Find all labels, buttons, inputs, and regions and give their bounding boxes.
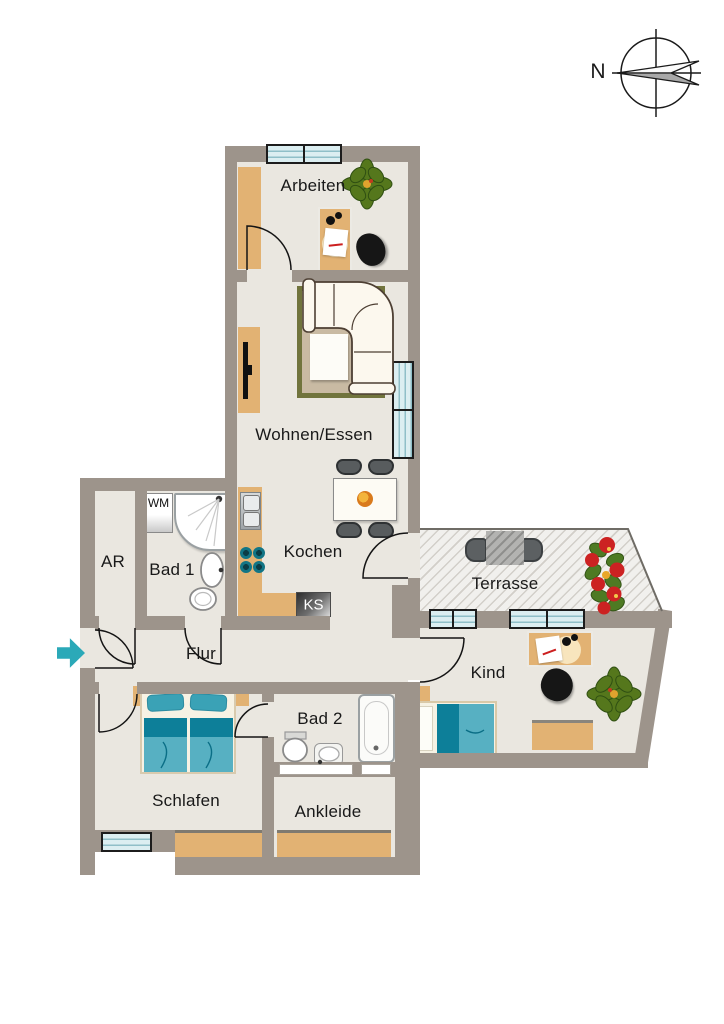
bed-blanket bbox=[190, 737, 233, 772]
wall-segment bbox=[175, 857, 420, 875]
wall-segment bbox=[221, 616, 330, 630]
compass bbox=[612, 29, 701, 117]
terrace-chair bbox=[521, 538, 543, 562]
wall-segment bbox=[408, 578, 420, 638]
wall-segment bbox=[80, 478, 95, 628]
fridge-label: KS bbox=[303, 596, 323, 613]
pillow bbox=[147, 693, 185, 712]
window-arbeiten bbox=[266, 144, 342, 164]
wall-segment bbox=[137, 682, 420, 694]
stove-burner bbox=[240, 561, 252, 573]
fridge: KS bbox=[296, 592, 331, 617]
desk-accessory-dot bbox=[571, 634, 578, 641]
room-label-ankleide: Ankleide bbox=[295, 802, 362, 822]
room-label-ar: AR bbox=[101, 552, 125, 572]
desk-accessory-dot bbox=[562, 637, 571, 646]
red-pen-mark bbox=[328, 243, 342, 246]
room-label-kind: Kind bbox=[471, 663, 506, 683]
wall-segment bbox=[262, 694, 274, 702]
room-label-flur: Flur bbox=[186, 644, 216, 664]
washing-machine: WM bbox=[144, 493, 173, 533]
doorway-bad2-ankleide bbox=[361, 764, 391, 775]
exterior-notch bbox=[95, 852, 175, 875]
coffee-table bbox=[310, 334, 348, 380]
terrace-chair bbox=[465, 538, 487, 562]
room-label-schlafen: Schlafen bbox=[152, 791, 220, 811]
room-label-terrasse: Terrasse bbox=[472, 574, 539, 594]
bathtub bbox=[358, 694, 395, 763]
wall-segment bbox=[225, 146, 237, 630]
wardrobe-ankleide bbox=[277, 830, 391, 857]
kind-bed-cover-dark bbox=[437, 704, 459, 754]
dining-chair bbox=[336, 522, 362, 538]
tv-stand bbox=[248, 365, 252, 375]
bed-cover-dark bbox=[190, 718, 233, 737]
window-schlafen bbox=[101, 832, 152, 852]
desk-paper bbox=[323, 228, 349, 257]
sideboard-kind bbox=[532, 720, 593, 750]
floor-kind-door-gap bbox=[408, 638, 420, 680]
desk-accessory-dot bbox=[326, 216, 335, 225]
north-needle bbox=[617, 73, 699, 85]
room-label-arbeiten: Arbeiten bbox=[281, 176, 346, 196]
wall-segment bbox=[292, 270, 408, 282]
compass-north-label: N bbox=[590, 60, 605, 84]
wall-segment bbox=[80, 478, 237, 491]
wall-segment bbox=[135, 491, 147, 616]
bed-cover-dark bbox=[144, 718, 187, 737]
floor-entry-gap bbox=[80, 628, 95, 668]
room-label-bad1: Bad 1 bbox=[149, 560, 194, 580]
wardrobe-arbeiten bbox=[238, 167, 261, 269]
wardrobe-schlafen bbox=[172, 830, 262, 857]
desk-paper bbox=[535, 635, 562, 663]
north-needle bbox=[617, 61, 699, 73]
dining-chair bbox=[368, 522, 394, 538]
stove-burner bbox=[240, 547, 252, 559]
window-kind-1 bbox=[429, 609, 477, 629]
wall-segment bbox=[408, 146, 420, 533]
wall-segment bbox=[262, 737, 274, 857]
desk-kind bbox=[527, 631, 593, 667]
kitchen-counter-leg bbox=[262, 593, 296, 617]
dining-chair bbox=[336, 459, 362, 475]
red-pen-mark bbox=[542, 648, 556, 655]
wall-segment bbox=[237, 270, 247, 282]
pillow bbox=[190, 693, 228, 712]
wall-segment bbox=[135, 616, 185, 630]
floor-plan: KS WM bbox=[0, 0, 724, 1024]
wall-segment bbox=[392, 585, 408, 638]
bed-blanket bbox=[144, 737, 187, 772]
wall-segment bbox=[80, 668, 95, 682]
stove-burner bbox=[253, 547, 265, 559]
terrace-table bbox=[486, 531, 524, 565]
room-label-wohnen-essen: Wohnen/Essen bbox=[255, 425, 372, 445]
wall-segment bbox=[80, 682, 95, 875]
wall-segment bbox=[95, 616, 99, 630]
fruit-bowl bbox=[357, 491, 373, 507]
terrace-ground bbox=[420, 528, 663, 613]
floor-terrace-door-gap bbox=[408, 533, 420, 578]
washing-machine-label: WM bbox=[148, 496, 169, 510]
wall-segment bbox=[408, 753, 648, 768]
window-kind-2 bbox=[509, 609, 585, 629]
kind-bed-blanket bbox=[459, 704, 494, 754]
kitchen-sink bbox=[240, 492, 261, 530]
room-label-bad2: Bad 2 bbox=[297, 709, 342, 729]
desk-accessory-dot bbox=[335, 212, 342, 219]
desk-arbeiten bbox=[318, 207, 352, 273]
stove-burner bbox=[253, 561, 265, 573]
dining-chair bbox=[368, 459, 394, 475]
doorway-bad2-ankleide bbox=[279, 764, 353, 775]
wall-segment bbox=[395, 682, 420, 857]
room-label-kochen: Kochen bbox=[284, 542, 343, 562]
window-wohnen bbox=[392, 361, 414, 459]
